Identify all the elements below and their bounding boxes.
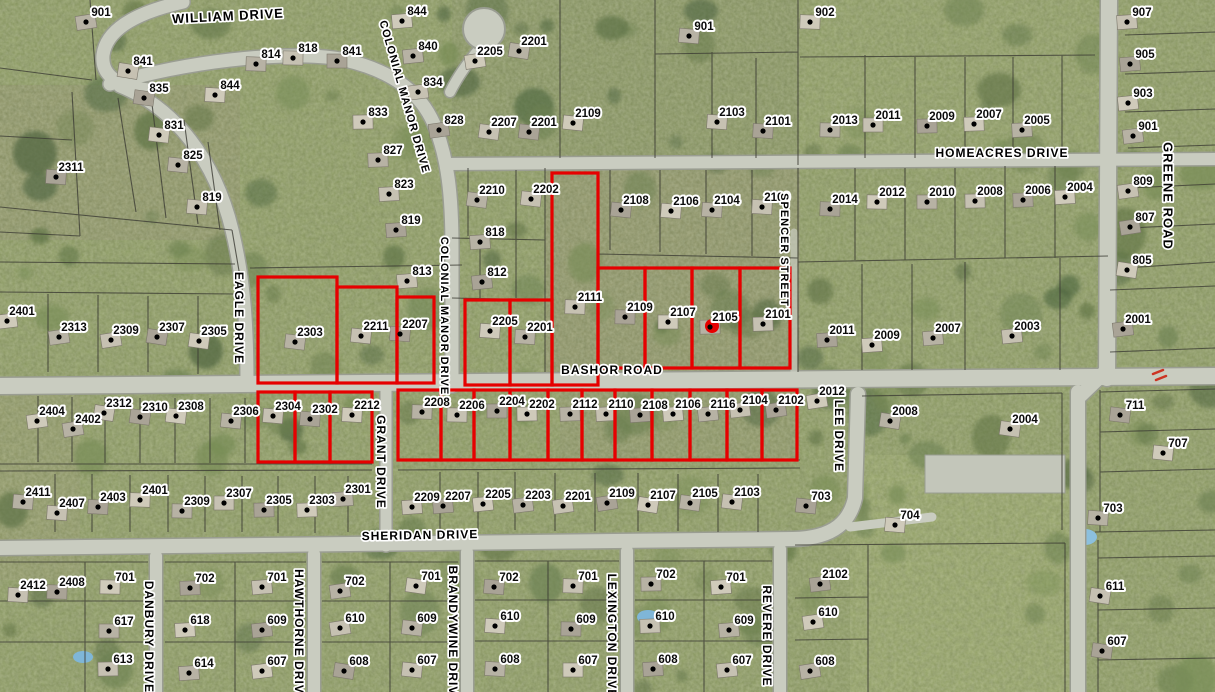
house-number-label: 2206 xyxy=(459,400,485,412)
house-number-label: 2312 xyxy=(106,398,132,410)
house-number-label: 2205 xyxy=(485,489,511,501)
address-point xyxy=(807,19,812,24)
house-number-label: 2401 xyxy=(9,306,35,318)
house-number-label: 702 xyxy=(656,569,675,581)
street-name-label: HAWTHORNE DRIVE xyxy=(292,569,306,692)
tree-canopy xyxy=(881,543,905,563)
tree-canopy xyxy=(797,346,823,370)
address-point xyxy=(261,507,266,512)
house-number-label: 703 xyxy=(811,491,830,503)
house-number-label: 609 xyxy=(267,615,286,627)
house-number-label: 607 xyxy=(732,655,751,667)
tree-canopy xyxy=(439,42,459,66)
address-point xyxy=(397,331,402,336)
house-number-label: 2010 xyxy=(929,187,955,199)
address-point xyxy=(648,581,653,586)
address-point xyxy=(972,198,977,203)
house-number-label: 702 xyxy=(499,572,518,584)
house-number-label: 2401 xyxy=(142,485,168,497)
address-point xyxy=(54,510,59,515)
house-number-label: 901 xyxy=(694,21,714,33)
house-number-label: 2112 xyxy=(573,399,598,411)
house-number-label: 2209 xyxy=(414,492,440,504)
house-number-label: 844 xyxy=(407,6,427,18)
address-point xyxy=(1160,450,1165,455)
address-point xyxy=(567,411,572,416)
street-name-label: LEXINGTON DRIVE xyxy=(605,574,619,692)
cul-de-sac xyxy=(463,8,505,50)
address-point xyxy=(1097,593,1102,598)
tree-canopy xyxy=(809,430,823,446)
house-number-label: 2102 xyxy=(822,569,848,581)
address-point xyxy=(817,581,822,586)
address-point xyxy=(1095,515,1100,520)
house-number-label: 610 xyxy=(500,611,519,623)
tree-canopy xyxy=(1152,394,1174,410)
address-point xyxy=(760,321,765,326)
house-number-label: 841 xyxy=(133,56,153,68)
address-point xyxy=(714,119,719,124)
address-point xyxy=(1125,100,1130,105)
address-point xyxy=(759,204,764,209)
address-point xyxy=(386,191,391,196)
address-point xyxy=(887,418,892,423)
tree-canopy xyxy=(1158,326,1178,348)
address-point xyxy=(645,502,650,507)
tree-canopy xyxy=(360,345,384,365)
house-number-label: 2005 xyxy=(1024,115,1050,127)
address-point xyxy=(410,53,415,58)
house-number-label: 2009 xyxy=(929,111,955,123)
house-number-label: 825 xyxy=(183,150,203,162)
house-number-label: 2201 xyxy=(527,322,553,334)
address-point xyxy=(479,279,484,284)
tree-canopy xyxy=(1074,213,1102,241)
house-number-label: 2408 xyxy=(59,577,85,589)
street-name-label: DANBURY DRIVE xyxy=(142,581,156,692)
house-number-label: 840 xyxy=(418,41,437,53)
tree-canopy xyxy=(325,90,339,102)
address-point xyxy=(337,625,342,630)
house-number-label: 807 xyxy=(1135,212,1154,224)
address-point xyxy=(358,333,363,338)
house-number-label: 2108 xyxy=(623,195,649,207)
house-number-label: 2202 xyxy=(533,184,559,196)
address-point xyxy=(454,412,459,417)
address-point xyxy=(182,627,187,632)
address-point xyxy=(259,584,264,589)
house-number-label: 835 xyxy=(149,83,169,95)
address-point xyxy=(971,121,976,126)
house-number-label: 2407 xyxy=(59,498,85,510)
house-number-label: 2105 xyxy=(692,488,718,500)
house-number-label: 702 xyxy=(195,573,214,585)
house-number-label: 831 xyxy=(164,120,184,132)
address-point xyxy=(304,507,309,512)
house-number-label: 2309 xyxy=(113,325,139,337)
address-point xyxy=(924,123,929,128)
address-point xyxy=(870,122,875,127)
house-number-label: 2001 xyxy=(1125,314,1151,326)
house-number-label: 2103 xyxy=(719,107,745,119)
house-number-label: 2305 xyxy=(266,495,292,507)
address-point xyxy=(259,627,264,632)
tree-canopy xyxy=(592,464,624,486)
address-point xyxy=(253,61,258,66)
house-number-label: 2301 xyxy=(345,484,371,496)
address-point xyxy=(413,583,418,588)
address-point xyxy=(665,319,670,324)
parcel-map-viewport[interactable]: 9018418358318258192311844814818841833827… xyxy=(0,0,1215,692)
house-number-label: 2404 xyxy=(39,406,65,418)
house-number-label: 2007 xyxy=(935,323,961,335)
address-point xyxy=(726,627,731,632)
address-point xyxy=(737,407,742,412)
address-point xyxy=(137,497,142,502)
house-number-label: 2011 xyxy=(876,110,902,122)
house-number-label: 2109 xyxy=(627,302,653,314)
street-name-label: LEE DRIVE xyxy=(832,400,846,472)
address-point xyxy=(773,407,778,412)
house-number-label: 609 xyxy=(734,615,753,627)
house-number-label: 905 xyxy=(1135,49,1155,61)
house-number-label: 2008 xyxy=(977,186,1003,198)
address-point xyxy=(54,589,59,594)
address-point xyxy=(874,199,879,204)
tree-canopy xyxy=(540,19,554,33)
address-point xyxy=(196,338,201,343)
address-point xyxy=(647,623,652,628)
address-point xyxy=(1127,61,1132,66)
tree-canopy xyxy=(653,546,681,568)
tree-canopy xyxy=(276,76,310,110)
address-point xyxy=(270,413,275,418)
address-point xyxy=(487,328,492,333)
address-point xyxy=(709,207,714,212)
house-number-label: 805 xyxy=(1132,255,1152,267)
address-point xyxy=(930,335,935,340)
address-point xyxy=(827,206,832,211)
address-point xyxy=(526,129,531,134)
address-point xyxy=(1124,267,1129,272)
house-number-label: 2111 xyxy=(578,292,603,304)
address-point xyxy=(399,18,404,23)
address-point xyxy=(53,174,58,179)
house-number-label: 707 xyxy=(1168,438,1187,450)
address-point xyxy=(137,414,142,419)
tree-canopy xyxy=(676,670,688,682)
tree-canopy xyxy=(700,273,730,297)
address-point xyxy=(1120,326,1125,331)
address-point xyxy=(1130,133,1135,138)
tree-canopy xyxy=(265,285,281,303)
address-point xyxy=(687,500,692,505)
house-number-label: 2012 xyxy=(879,187,905,199)
address-point xyxy=(341,668,346,673)
tree-canopy xyxy=(1034,344,1052,360)
house-number-label: 608 xyxy=(500,654,520,666)
house-number-label: 608 xyxy=(349,656,369,668)
tree-canopy xyxy=(1026,570,1062,596)
house-number-label: 2204 xyxy=(499,396,525,408)
address-point xyxy=(1009,333,1014,338)
address-point xyxy=(173,413,178,418)
house-number-label: 834 xyxy=(423,77,443,89)
address-point xyxy=(528,196,533,201)
house-number-label: 907 xyxy=(1132,7,1151,19)
house-number-label: 2402 xyxy=(75,414,101,426)
address-point xyxy=(522,334,527,339)
tree-canopy xyxy=(807,278,833,304)
house-number-label: 2107 xyxy=(670,307,696,319)
house-number-label: 2107 xyxy=(650,490,676,502)
house-number-label: 902 xyxy=(815,7,834,19)
house-number-label: 2208 xyxy=(424,397,450,409)
house-number-label: 2212 xyxy=(354,400,380,412)
house-number-label: 818 xyxy=(298,43,318,55)
address-point xyxy=(491,584,496,589)
house-number-label: 2011 xyxy=(830,325,856,337)
house-number-label: 2305 xyxy=(201,326,227,338)
address-point xyxy=(520,502,525,507)
house-number-label: 2311 xyxy=(59,162,85,174)
house-number-label: 2207 xyxy=(445,491,471,503)
tree-canopy xyxy=(1136,423,1158,445)
tree-canopy xyxy=(168,241,190,257)
address-point xyxy=(334,58,339,63)
address-point xyxy=(1020,197,1025,202)
house-number-label: 610 xyxy=(818,607,837,619)
address-point xyxy=(570,120,575,125)
address-point xyxy=(492,623,497,628)
address-point xyxy=(1117,412,1122,417)
address-point xyxy=(807,668,812,673)
address-point xyxy=(360,119,365,124)
house-number-label: 2109 xyxy=(609,488,635,500)
address-point xyxy=(824,337,829,342)
house-number-label: 608 xyxy=(815,656,835,668)
house-number-label: 2105 xyxy=(712,312,738,324)
house-number-label: 608 xyxy=(658,654,678,666)
address-point xyxy=(349,412,354,417)
house-number-label: 607 xyxy=(578,655,597,667)
tree-canopy xyxy=(513,23,529,35)
tree-canopy xyxy=(1025,604,1045,624)
address-point xyxy=(83,19,88,24)
house-number-label: 2014 xyxy=(832,194,858,206)
tree-canopy xyxy=(529,563,563,603)
house-number-label: 2403 xyxy=(100,492,126,504)
address-point xyxy=(568,626,573,631)
house-number-label: 2116 xyxy=(711,399,736,411)
address-point xyxy=(1062,194,1067,199)
house-number-label: 607 xyxy=(1107,636,1126,648)
house-number-label: 2109 xyxy=(575,108,601,120)
address-point xyxy=(105,666,110,671)
house-number-label: 828 xyxy=(444,115,464,127)
address-point xyxy=(869,342,874,347)
address-point xyxy=(415,89,420,94)
house-number-label: 2104 xyxy=(742,395,768,407)
address-point xyxy=(1127,224,1132,229)
house-number-label: 819 xyxy=(202,192,221,204)
street-name-label: EAGLE DRIVE xyxy=(232,272,246,364)
house-number-label: 833 xyxy=(368,107,387,119)
house-number-label: 2106 xyxy=(675,399,701,411)
house-number-label: 609 xyxy=(417,613,436,625)
address-point xyxy=(524,411,529,416)
street-name-label: SPENCER STREET xyxy=(778,193,790,307)
house-number-label: 610 xyxy=(345,613,364,625)
address-point xyxy=(572,304,577,309)
house-number-label: 2006 xyxy=(1025,185,1051,197)
house-number-label: 2303 xyxy=(309,495,335,507)
address-point xyxy=(101,410,106,415)
address-point xyxy=(34,418,39,423)
address-point xyxy=(492,666,497,671)
street-name-label: GRANT DRIVE xyxy=(374,415,388,509)
address-point xyxy=(106,628,111,633)
house-number-label: 701 xyxy=(421,571,441,583)
address-point xyxy=(570,667,575,672)
address-point xyxy=(603,411,608,416)
tree-canopy xyxy=(245,179,277,207)
house-number-label: 2307 xyxy=(159,322,185,334)
tree-canopy xyxy=(955,263,971,281)
address-point xyxy=(570,583,575,588)
address-point xyxy=(637,412,642,417)
aerial-parcel-map[interactable]: 9018418358318258192311844814818841833827… xyxy=(0,0,1215,692)
house-number-label: 610 xyxy=(655,611,674,623)
street-name-label: COLONIAL MANOR DRIVE xyxy=(438,237,450,396)
address-point xyxy=(108,337,113,342)
address-point xyxy=(814,398,819,403)
house-number-label: 901 xyxy=(91,7,111,19)
house-number-label: 2108 xyxy=(642,400,668,412)
house-number-label: 701 xyxy=(726,572,746,584)
house-number-label: 2203 xyxy=(525,490,551,502)
address-point xyxy=(194,204,199,209)
house-number-label: 2310 xyxy=(142,402,168,414)
house-number-label: 819 xyxy=(401,215,420,227)
address-point xyxy=(393,227,398,232)
house-number-label: 2013 xyxy=(832,115,858,127)
house-number-label: 609 xyxy=(576,614,595,626)
address-point xyxy=(474,197,479,202)
address-point xyxy=(292,339,297,344)
address-point xyxy=(705,411,710,416)
house-number-label: 2202 xyxy=(529,399,555,411)
house-number-label: 814 xyxy=(261,49,281,61)
house-number-label: 841 xyxy=(342,46,362,58)
house-number-label: 614 xyxy=(194,658,214,670)
street-name-label: HOMEACRES DRIVE xyxy=(935,146,1068,160)
street-name-label: BRANDYWINE DRIVE xyxy=(446,566,460,692)
address-point xyxy=(810,619,815,624)
house-number-label: 2104 xyxy=(714,195,740,207)
house-number-label: 901 xyxy=(1138,121,1158,133)
address-point xyxy=(1019,127,1024,132)
address-point xyxy=(477,239,482,244)
address-point xyxy=(494,408,499,413)
house-number-label: 2412 xyxy=(20,580,46,592)
address-point xyxy=(760,128,765,133)
house-number-label: 2205 xyxy=(477,46,503,58)
address-point xyxy=(516,48,521,53)
address-point xyxy=(221,500,226,505)
house-number-label: 701 xyxy=(578,571,598,583)
house-number-label: 2201 xyxy=(531,117,557,129)
address-point xyxy=(729,499,734,504)
address-point xyxy=(803,503,808,508)
address-point xyxy=(409,504,414,509)
house-number-label: 617 xyxy=(114,616,133,628)
address-point xyxy=(141,95,146,100)
house-number-label: 2302 xyxy=(312,404,338,416)
house-number-label: 809 xyxy=(1133,176,1152,188)
tree-canopy xyxy=(1002,24,1032,46)
address-point xyxy=(686,33,691,38)
address-point xyxy=(70,426,75,431)
house-number-label: 607 xyxy=(267,656,286,668)
house-number-label: 2009 xyxy=(874,330,900,342)
house-number-label: 2411 xyxy=(26,487,52,499)
address-point xyxy=(375,157,380,162)
address-point xyxy=(212,92,217,97)
address-point xyxy=(187,585,192,590)
house-number-label: 2210 xyxy=(479,185,505,197)
house-number-label: 2012 xyxy=(819,386,845,398)
house-number-label: 812 xyxy=(487,267,506,279)
house-number-label: 711 xyxy=(1126,400,1145,412)
address-point xyxy=(20,499,25,504)
tree-canopy xyxy=(1044,532,1072,564)
address-point xyxy=(650,666,655,671)
tree-canopy xyxy=(437,6,451,22)
house-number-label: 2308 xyxy=(178,401,204,413)
tree-canopy xyxy=(1058,275,1080,297)
house-number-label: 2211 xyxy=(364,321,390,333)
house-number-label: 827 xyxy=(383,145,402,157)
house-number-label: 2101 xyxy=(765,116,791,128)
address-point xyxy=(440,503,445,508)
address-point xyxy=(107,584,112,589)
house-number-label: 903 xyxy=(1133,88,1152,100)
address-point xyxy=(707,324,712,329)
house-number-label: 2307 xyxy=(226,488,252,500)
house-number-label: 818 xyxy=(485,227,505,239)
tree-canopy xyxy=(3,623,17,637)
tree-canopy xyxy=(888,485,906,505)
house-number-label: 2304 xyxy=(275,401,301,413)
tree-canopy xyxy=(74,439,108,475)
address-point xyxy=(560,503,565,508)
address-point xyxy=(156,132,161,137)
address-point xyxy=(472,58,477,63)
tree-canopy xyxy=(18,267,32,279)
pool xyxy=(73,651,93,663)
house-number-label: 813 xyxy=(412,266,431,278)
house-number-label: 703 xyxy=(1103,503,1122,515)
house-number-label: 611 xyxy=(1106,581,1125,593)
address-point xyxy=(670,411,675,416)
address-point xyxy=(622,314,627,319)
house-number-label: 2309 xyxy=(184,496,210,508)
tree-canopy xyxy=(30,228,50,244)
house-number-label: 2207 xyxy=(402,319,428,331)
house-number-label: 618 xyxy=(190,615,210,627)
address-point xyxy=(480,501,485,506)
